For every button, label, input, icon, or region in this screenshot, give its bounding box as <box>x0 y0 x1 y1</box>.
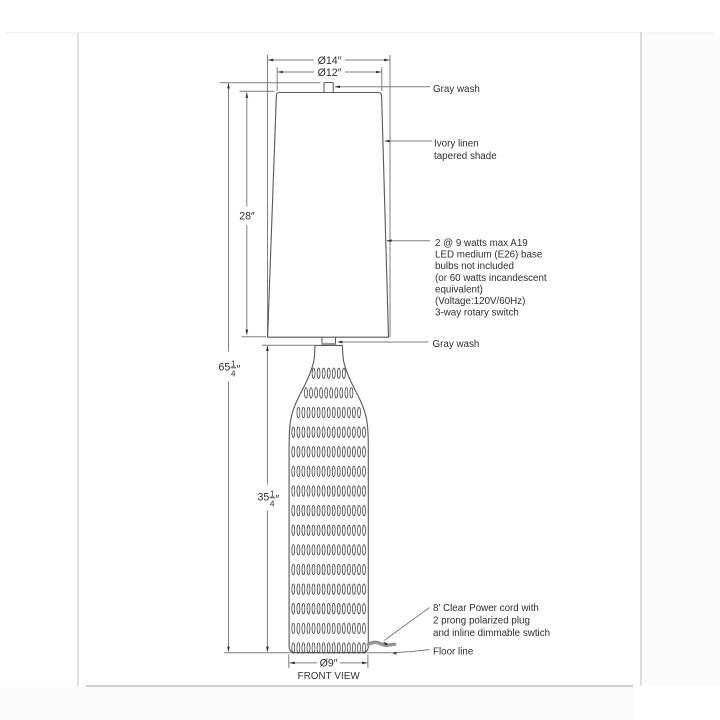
svg-text:1: 1 <box>270 490 275 499</box>
svg-text:65: 65 <box>219 362 231 374</box>
svg-text:Floor line: Floor line <box>433 647 474 658</box>
svg-text:4: 4 <box>231 370 236 379</box>
svg-text:″: ″ <box>237 363 241 375</box>
svg-text:2 prong polarized plug: 2 prong polarized plug <box>433 616 530 627</box>
svg-text:FRONT VIEW: FRONT VIEW <box>298 671 361 682</box>
svg-text:28″: 28″ <box>239 211 255 223</box>
svg-text:Ø9″: Ø9″ <box>320 657 338 669</box>
svg-text:″: ″ <box>276 493 280 505</box>
svg-text:Ivory linen: Ivory linen <box>434 138 479 149</box>
svg-text:3-way rotary switch: 3-way rotary switch <box>435 308 519 319</box>
svg-text:Ø12″: Ø12″ <box>318 67 342 79</box>
svg-text:35: 35 <box>258 492 270 504</box>
svg-text:8' Clear Power cord with: 8' Clear Power cord with <box>433 603 539 614</box>
svg-text:1: 1 <box>231 360 236 369</box>
svg-text:bulbs not included: bulbs not included <box>435 261 514 272</box>
svg-text:2 @ 9 watts max A19: 2 @ 9 watts max A19 <box>435 238 528 249</box>
svg-text:and inline dimmable swtich: and inline dimmable swtich <box>433 628 550 639</box>
svg-text:LED medium (E26) base: LED medium (E26) base <box>435 250 543 261</box>
svg-text:tapered shade: tapered shade <box>434 151 497 162</box>
svg-text:equivalent): equivalent) <box>435 284 483 295</box>
svg-text:Gray wash: Gray wash <box>433 84 480 95</box>
svg-text:Gray wash: Gray wash <box>433 339 480 350</box>
svg-text:(or 60 watts incandescent: (or 60 watts incandescent <box>435 273 547 284</box>
svg-text:4: 4 <box>270 500 275 509</box>
svg-text:(Voltage:120V/60Hz): (Voltage:120V/60Hz) <box>435 296 525 307</box>
svg-text:Ø14″: Ø14″ <box>318 55 342 67</box>
